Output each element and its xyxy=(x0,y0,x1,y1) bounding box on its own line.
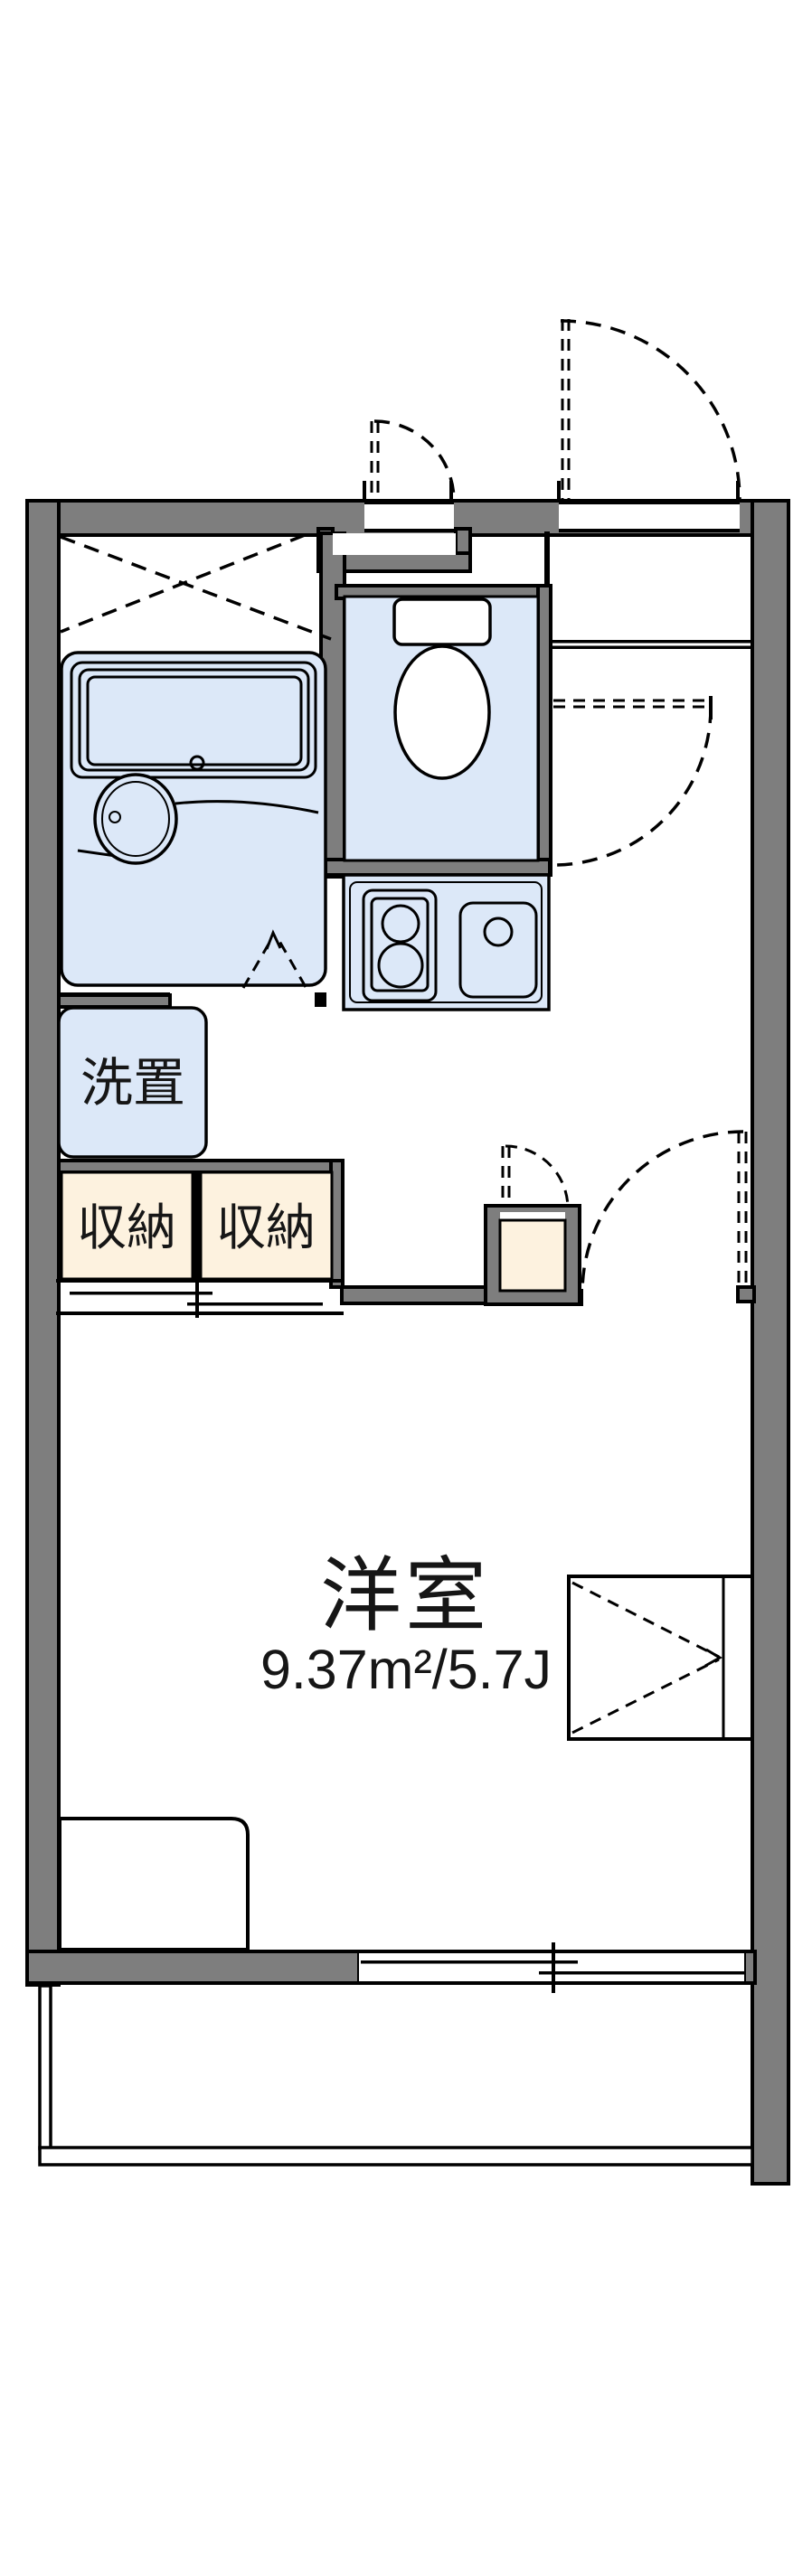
small-door-opening xyxy=(364,504,454,529)
balcony xyxy=(40,1986,752,2165)
main-room: 洋室 9.37m²/5.7J xyxy=(60,1551,752,1950)
wall-right xyxy=(752,501,788,2184)
wall-room-boundary-mid xyxy=(342,1287,490,1303)
window-pane-line xyxy=(361,1960,578,1964)
toilet-room xyxy=(345,597,538,860)
sliding-door-line xyxy=(70,1292,212,1295)
balcony-rail-bottom xyxy=(40,2148,752,2165)
entrance-opening xyxy=(559,504,740,529)
laundry-space: 洗置 xyxy=(59,1008,206,1157)
floor-plan-canvas: 洗置 収納 収納 洋室 9.37m²/5.7J xyxy=(0,0,812,2576)
closet xyxy=(569,1576,752,1739)
hall-door-arc xyxy=(553,708,711,865)
storage-label-right: 収納 xyxy=(216,1199,316,1255)
wall-bath-bottom xyxy=(59,995,170,1007)
wall-bottom-left xyxy=(27,1951,359,1983)
entrance-door-arc xyxy=(561,321,740,500)
exterior-door-arcs xyxy=(363,319,740,503)
bed xyxy=(60,1819,248,1950)
wall-bottom-pillar xyxy=(744,1951,755,1983)
toilet-bowl xyxy=(395,646,489,778)
bathroom xyxy=(61,535,331,988)
utility-door-arc xyxy=(505,1146,568,1208)
room-size-label: 9.37m²/5.7J xyxy=(260,1639,552,1700)
wall-toilet-bottom xyxy=(326,860,550,875)
washbasin xyxy=(95,775,176,863)
genkan-step-line xyxy=(549,640,752,644)
laundry-label: 洗置 xyxy=(80,1054,185,1113)
wall-left xyxy=(27,501,59,1985)
storage-label-left: 収納 xyxy=(77,1199,176,1255)
toilet-tank xyxy=(394,599,490,644)
wall-hall-line xyxy=(544,531,550,588)
wall-storage-top xyxy=(59,1161,343,1172)
wall-toilet-right xyxy=(538,586,551,875)
room-door-arc xyxy=(582,1132,743,1293)
genkan-pocket-floor xyxy=(333,533,456,555)
floor-plan: 洗置 収納 収納 洋室 9.37m²/5.7J xyxy=(0,0,812,2576)
small-door-arc xyxy=(374,421,454,501)
cross-mark xyxy=(61,537,331,639)
utility-box xyxy=(500,1220,565,1291)
balcony-rail-left xyxy=(40,1986,51,2148)
storage-boxes: 収納 収納 xyxy=(56,1172,344,1318)
wall-room-boundary-right xyxy=(738,1287,754,1302)
kitchen xyxy=(344,875,549,1010)
room-name-label: 洋室 xyxy=(320,1551,490,1641)
